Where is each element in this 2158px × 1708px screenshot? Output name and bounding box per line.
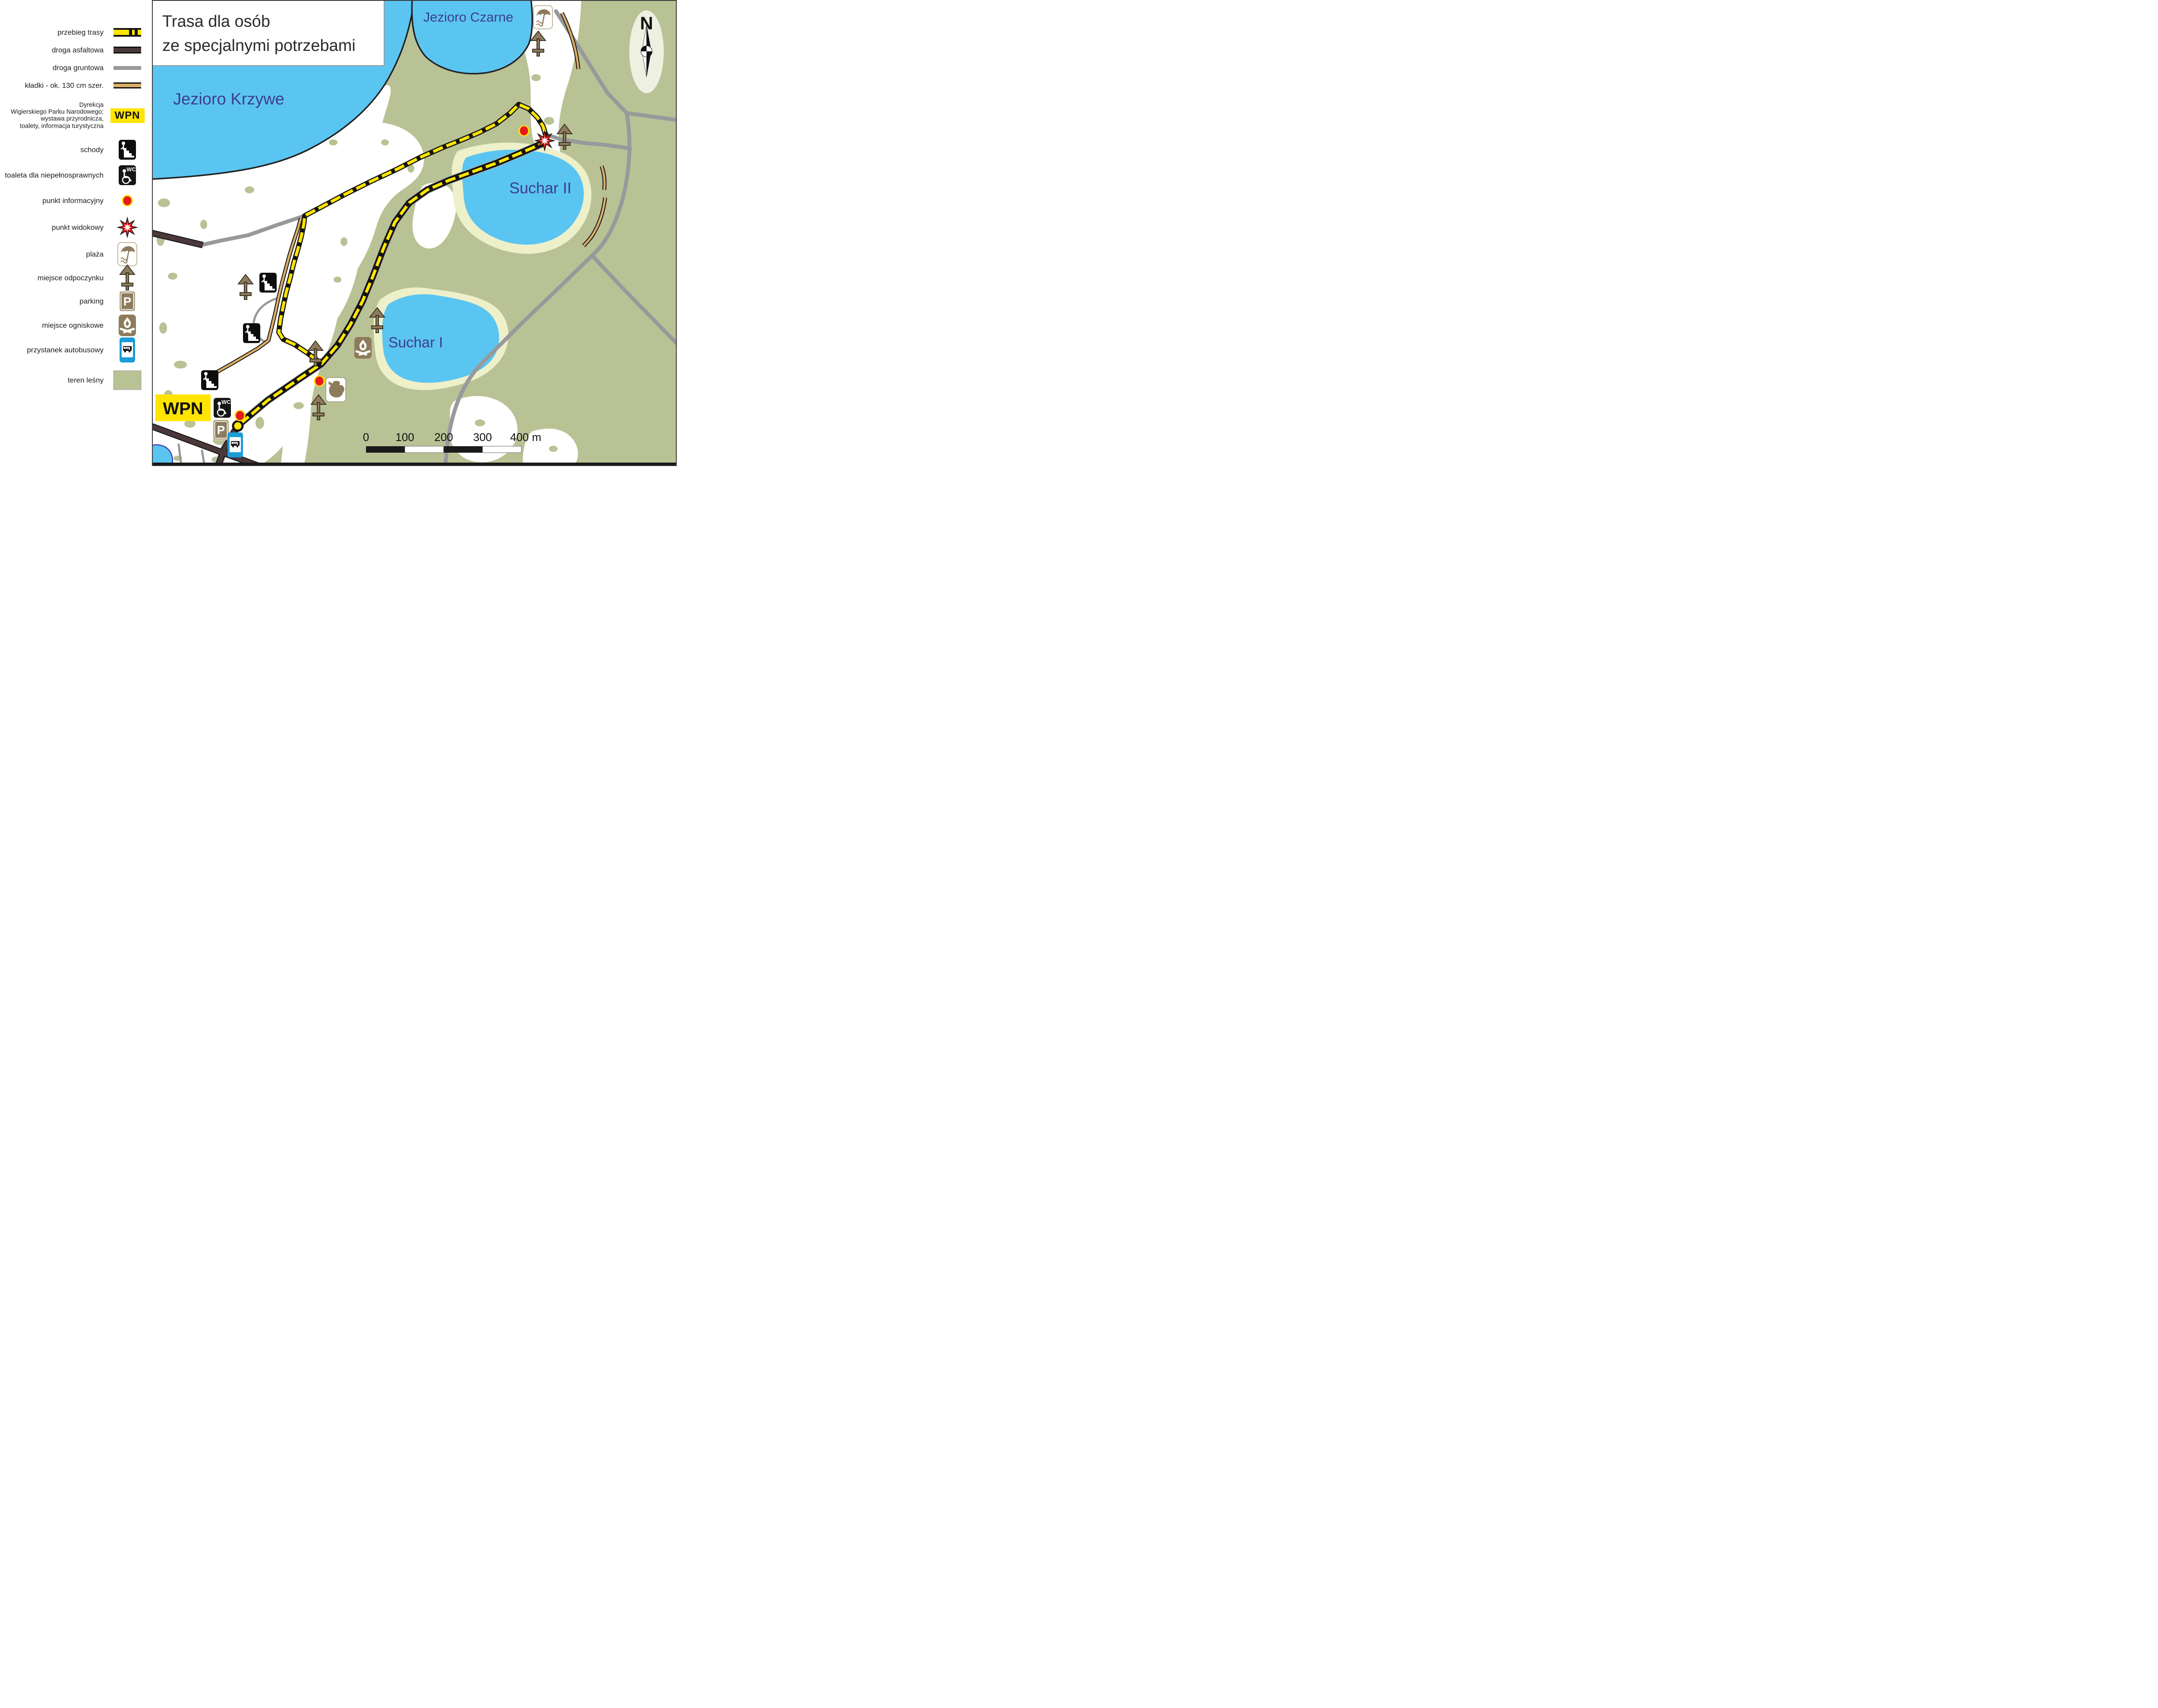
bus-stop-icon bbox=[227, 432, 243, 457]
legend-label: punkt widokowy bbox=[0, 223, 104, 231]
parking-icon-text: P bbox=[217, 423, 225, 437]
legend-label: miejsce odpoczynku bbox=[0, 274, 104, 282]
legend-label: przebieg trasy bbox=[0, 28, 104, 36]
label-jezioro-czarne: Jezioro Czarne bbox=[423, 9, 513, 25]
legend-label: teren leśny bbox=[0, 376, 104, 384]
parking-icon-text: P bbox=[123, 295, 132, 308]
beach-icon bbox=[118, 243, 137, 266]
water-jug-icon bbox=[326, 378, 346, 402]
compass-rose: N bbox=[629, 10, 664, 93]
wpn-badge: WPN bbox=[110, 108, 145, 123]
legend-label: Dyrekcja Wigierskiego Parku Narodowego: … bbox=[0, 102, 104, 130]
label-jezioro-krzywe: Jezioro Krzywe bbox=[173, 90, 284, 108]
stairs-icon bbox=[119, 140, 136, 160]
viewpoint-icon bbox=[118, 218, 137, 237]
information-point-icon bbox=[122, 195, 133, 206]
legend-label: kładki - ok. 130 cm szer. bbox=[0, 81, 104, 89]
dirt-road-sample bbox=[113, 65, 142, 71]
wc-icon-text: WC bbox=[126, 166, 136, 173]
beach-icon bbox=[533, 6, 552, 29]
scale-tick: 300 bbox=[473, 431, 492, 444]
legend-label: miejsce ogniskowe bbox=[0, 321, 104, 329]
map-canvas: WC P WPN Jezioro Krzywe Jezioro Czarne S… bbox=[152, 0, 677, 466]
campfire-icon bbox=[354, 337, 372, 359]
legend-label: schody bbox=[0, 145, 104, 154]
information-point-icon bbox=[518, 125, 530, 136]
legend-label: punkt informacyjny bbox=[0, 196, 104, 205]
label-suchar-1: Suchar I bbox=[388, 334, 443, 351]
campfire-icon bbox=[119, 315, 136, 336]
scale-tick: 200 bbox=[434, 431, 453, 444]
information-point-icon bbox=[234, 410, 246, 421]
legend-label: droga gruntowa bbox=[0, 63, 104, 72]
stairs-icon bbox=[243, 323, 260, 343]
title-box: Trasa dla osób ze specjalnymi potrzebami bbox=[152, 0, 384, 66]
rest-area-icon bbox=[120, 265, 135, 290]
map-title-line1: Trasa dla osób bbox=[162, 13, 270, 31]
forest-sample bbox=[113, 370, 142, 390]
legend-panel: przebieg trasy droga asfaltowa droga gru… bbox=[0, 0, 152, 466]
trail-map-page: przebieg trasy droga asfaltowa droga gru… bbox=[0, 0, 677, 466]
viewpoint-icon bbox=[535, 131, 554, 150]
trail-start-marker bbox=[233, 421, 243, 431]
scale-tick: 100 bbox=[395, 431, 414, 444]
wc-icon-text: WC bbox=[221, 399, 231, 405]
asphalt-road-sample bbox=[113, 45, 142, 55]
svg-text:WPN: WPN bbox=[163, 399, 203, 418]
stairs-icon bbox=[201, 370, 218, 390]
legend-label: przystanek autobusowy bbox=[0, 346, 104, 354]
boardwalk-sample bbox=[113, 81, 142, 90]
information-point-icon bbox=[314, 375, 325, 387]
bus-stop-icon bbox=[120, 337, 135, 362]
legend-label: droga asfaltowa bbox=[0, 46, 104, 54]
legend-label: toaleta dla niepełnosprawnych bbox=[0, 171, 104, 179]
stairs-icon bbox=[259, 273, 277, 293]
map-title-line2: ze specjalnymi potrzebami bbox=[162, 37, 356, 55]
label-suchar-2: Suchar II bbox=[509, 179, 571, 197]
trail-line-sample bbox=[113, 27, 142, 38]
legend-label: parking bbox=[0, 297, 104, 305]
wpn-map-label: WPN bbox=[155, 394, 211, 421]
scale-tick: 0 bbox=[363, 431, 369, 444]
scale-tick: 400 m bbox=[510, 431, 541, 444]
legend-label: plaża bbox=[0, 250, 104, 258]
